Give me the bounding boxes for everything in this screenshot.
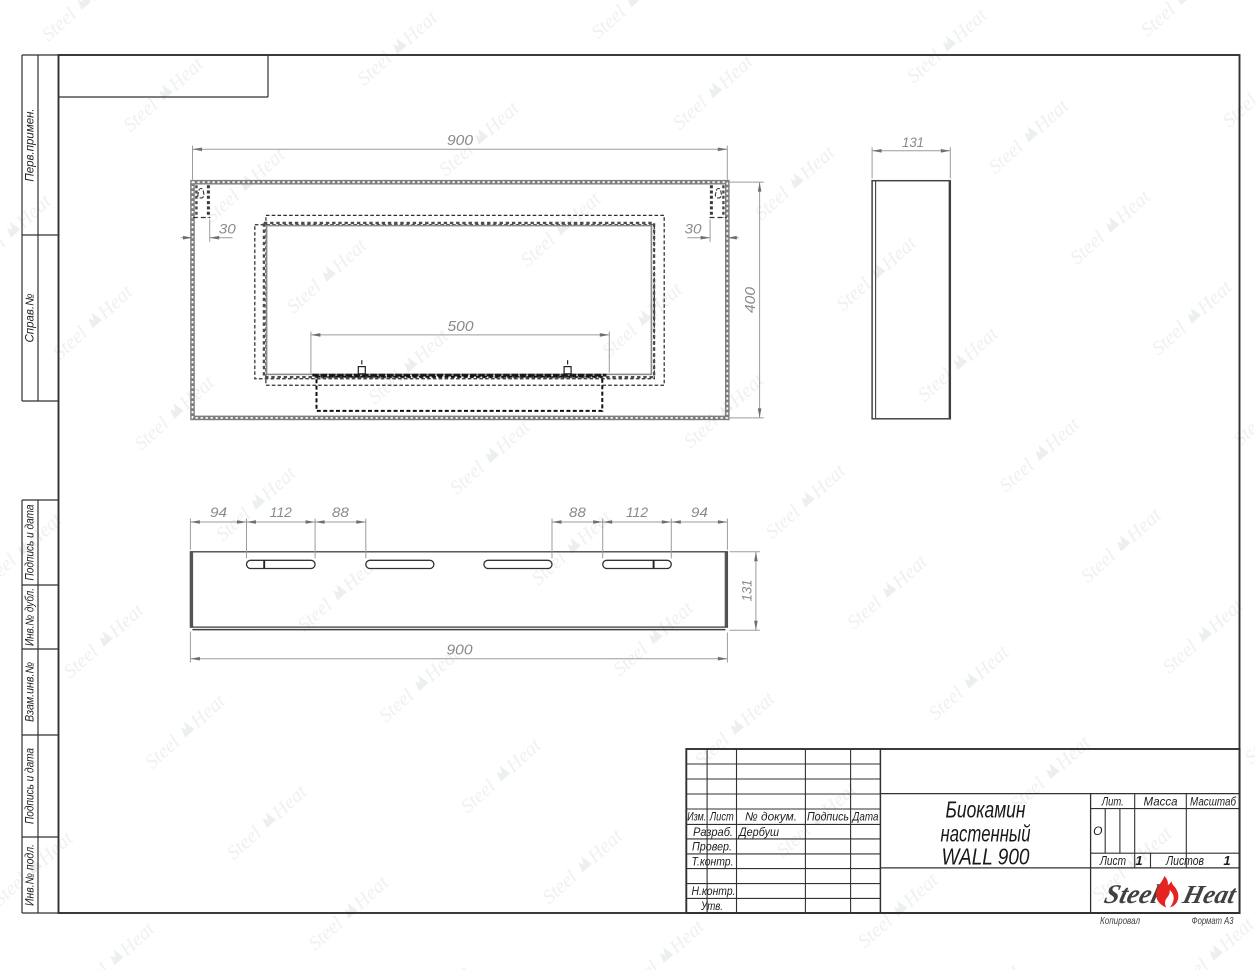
svg-text:88: 88	[332, 504, 349, 520]
svg-text:1: 1	[1223, 853, 1230, 868]
svg-text:О: О	[1093, 824, 1102, 838]
svg-text:500: 500	[448, 319, 474, 335]
svg-text:№ докум.: № докум.	[745, 810, 797, 824]
svg-text:Подпись и дата: Подпись и дата	[25, 505, 37, 581]
svg-text:Инв.№ дубл.: Инв.№ дубл.	[25, 588, 37, 646]
svg-text:Лист: Лист	[709, 810, 734, 824]
svg-text:30: 30	[219, 221, 236, 237]
svg-text:Справ.№: Справ.№	[25, 293, 37, 343]
svg-text:94: 94	[691, 504, 708, 520]
svg-text:Инв.№ подл.: Инв.№ подл.	[25, 844, 37, 906]
svg-text:Н.контр.: Н.контр.	[692, 884, 736, 898]
svg-text:Лист: Лист	[1099, 854, 1126, 868]
svg-text:Лит.: Лит.	[1101, 794, 1124, 808]
svg-text:Steel: Steel	[1102, 879, 1164, 909]
svg-text:Подпись и дата: Подпись и дата	[25, 748, 37, 824]
svg-text:88: 88	[569, 504, 586, 520]
svg-text:94: 94	[210, 504, 227, 520]
svg-text:Подпись: Подпись	[807, 810, 849, 824]
svg-text:Heat: Heat	[1179, 879, 1240, 909]
svg-text:Дата: Дата	[851, 810, 879, 824]
svg-text:Разраб.: Разраб.	[693, 825, 733, 839]
svg-text:WALL 900: WALL 900	[942, 843, 1030, 869]
svg-text:Т.контр.: Т.контр.	[692, 855, 734, 869]
svg-text:Перв.примен.: Перв.примен.	[25, 108, 37, 181]
svg-text:Дербуш: Дербуш	[737, 825, 779, 839]
svg-text:112: 112	[626, 504, 648, 520]
svg-text:400: 400	[743, 287, 759, 313]
svg-text:131: 131	[902, 134, 924, 150]
svg-text:Взам.инв.№: Взам.инв.№	[25, 662, 37, 722]
svg-text:30: 30	[685, 221, 702, 237]
svg-text:Листов: Листов	[1165, 854, 1204, 868]
svg-text:1: 1	[1135, 853, 1142, 868]
svg-text:Провер.: Провер.	[692, 840, 732, 854]
svg-text:900: 900	[447, 133, 473, 149]
svg-text:900: 900	[447, 643, 473, 659]
svg-text:Утв.: Утв.	[700, 899, 723, 913]
svg-text:Изм.: Изм.	[687, 810, 706, 824]
svg-text:112: 112	[270, 504, 292, 520]
svg-text:131: 131	[738, 580, 754, 602]
svg-text:Масштаб: Масштаб	[1190, 794, 1237, 808]
svg-text:Масса: Масса	[1144, 794, 1178, 808]
svg-text:Биокамин: Биокамин	[946, 796, 1026, 822]
svg-text:Копировал: Копировал	[1100, 915, 1140, 927]
svg-text:Формат А3: Формат А3	[1192, 915, 1234, 927]
